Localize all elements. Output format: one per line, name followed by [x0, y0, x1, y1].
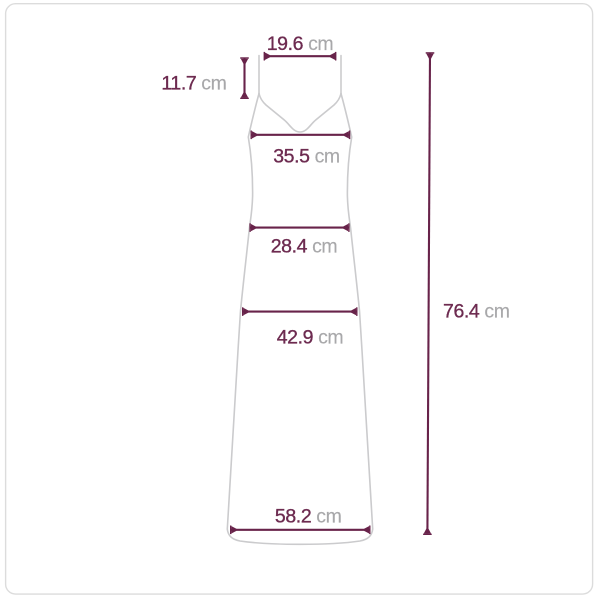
svg-text:19.6 cm: 19.6 cm	[267, 33, 334, 55]
svg-text:28.4 cm: 28.4 cm	[271, 235, 338, 257]
svg-text:11.7 cm: 11.7 cm	[161, 72, 226, 94]
svg-text:35.5 cm: 35.5 cm	[273, 145, 340, 167]
svg-text:42.9 cm: 42.9 cm	[277, 326, 344, 348]
svg-text:58.2 cm: 58.2 cm	[275, 506, 342, 528]
svg-text:76.4 cm: 76.4 cm	[443, 301, 510, 323]
